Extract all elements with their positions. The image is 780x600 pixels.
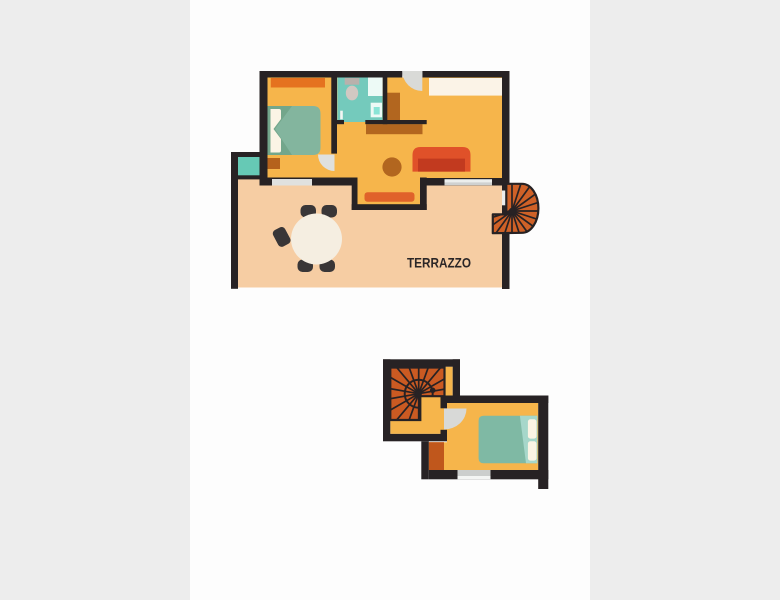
svg-text:TERRAZZO: TERRAZZO: [407, 255, 471, 271]
